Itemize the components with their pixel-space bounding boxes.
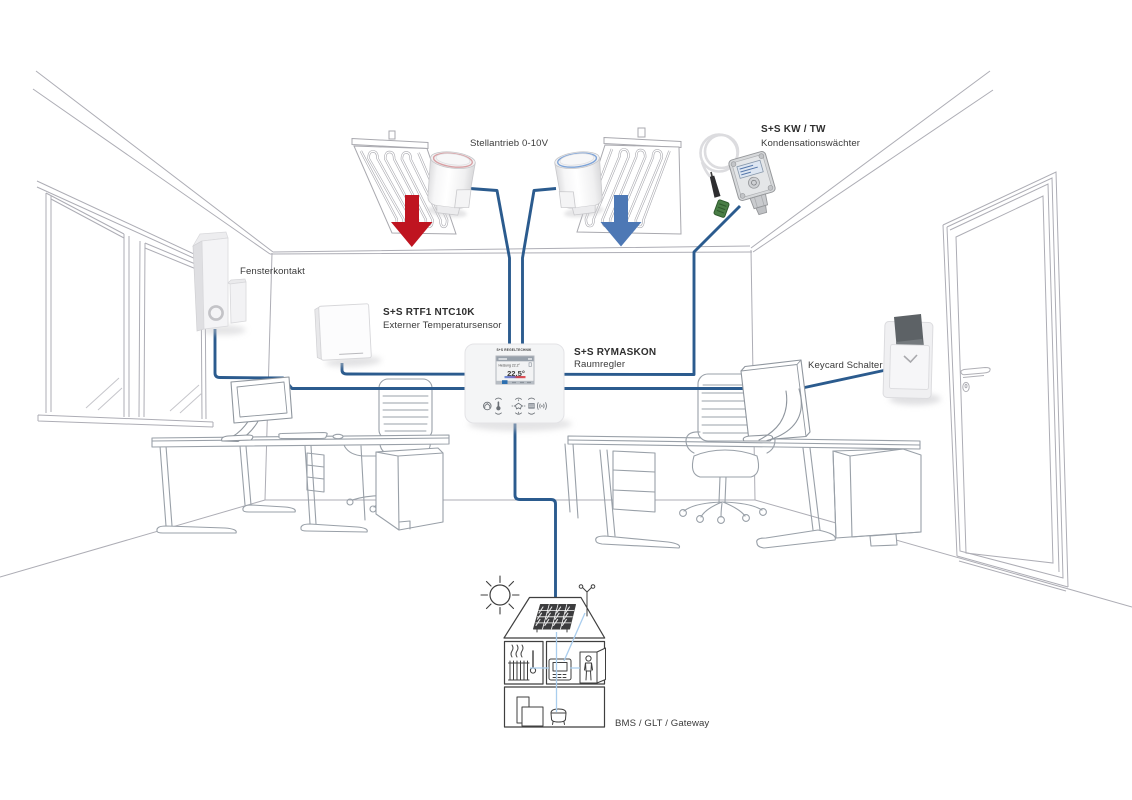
svg-text:Stellantrieb 0-10V: Stellantrieb 0-10V: [470, 138, 549, 149]
svg-text:S+S RYMASKON: S+S RYMASKON: [574, 347, 656, 358]
svg-text:S+S KW / TW: S+S KW / TW: [761, 124, 826, 135]
svg-text:Externer Temperatursensor: Externer Temperatursensor: [383, 320, 502, 331]
svg-text:BMS / GLT / Gateway: BMS / GLT / Gateway: [615, 718, 709, 729]
svg-text:Keycard Schalter: Keycard Schalter: [808, 360, 883, 371]
svg-text:S+S REGELTECHNIK: S+S REGELTECHNIK: [496, 348, 532, 352]
svg-text:S+S RTF1 NTC10K: S+S RTF1 NTC10K: [383, 307, 475, 318]
svg-text:Fensterkontakt: Fensterkontakt: [240, 266, 305, 277]
svg-text:Kondensationswächter: Kondensationswächter: [761, 138, 861, 149]
svg-text:Heizung 22.2°: Heizung 22.2°: [499, 364, 521, 368]
svg-text:Raumregler: Raumregler: [574, 359, 626, 370]
